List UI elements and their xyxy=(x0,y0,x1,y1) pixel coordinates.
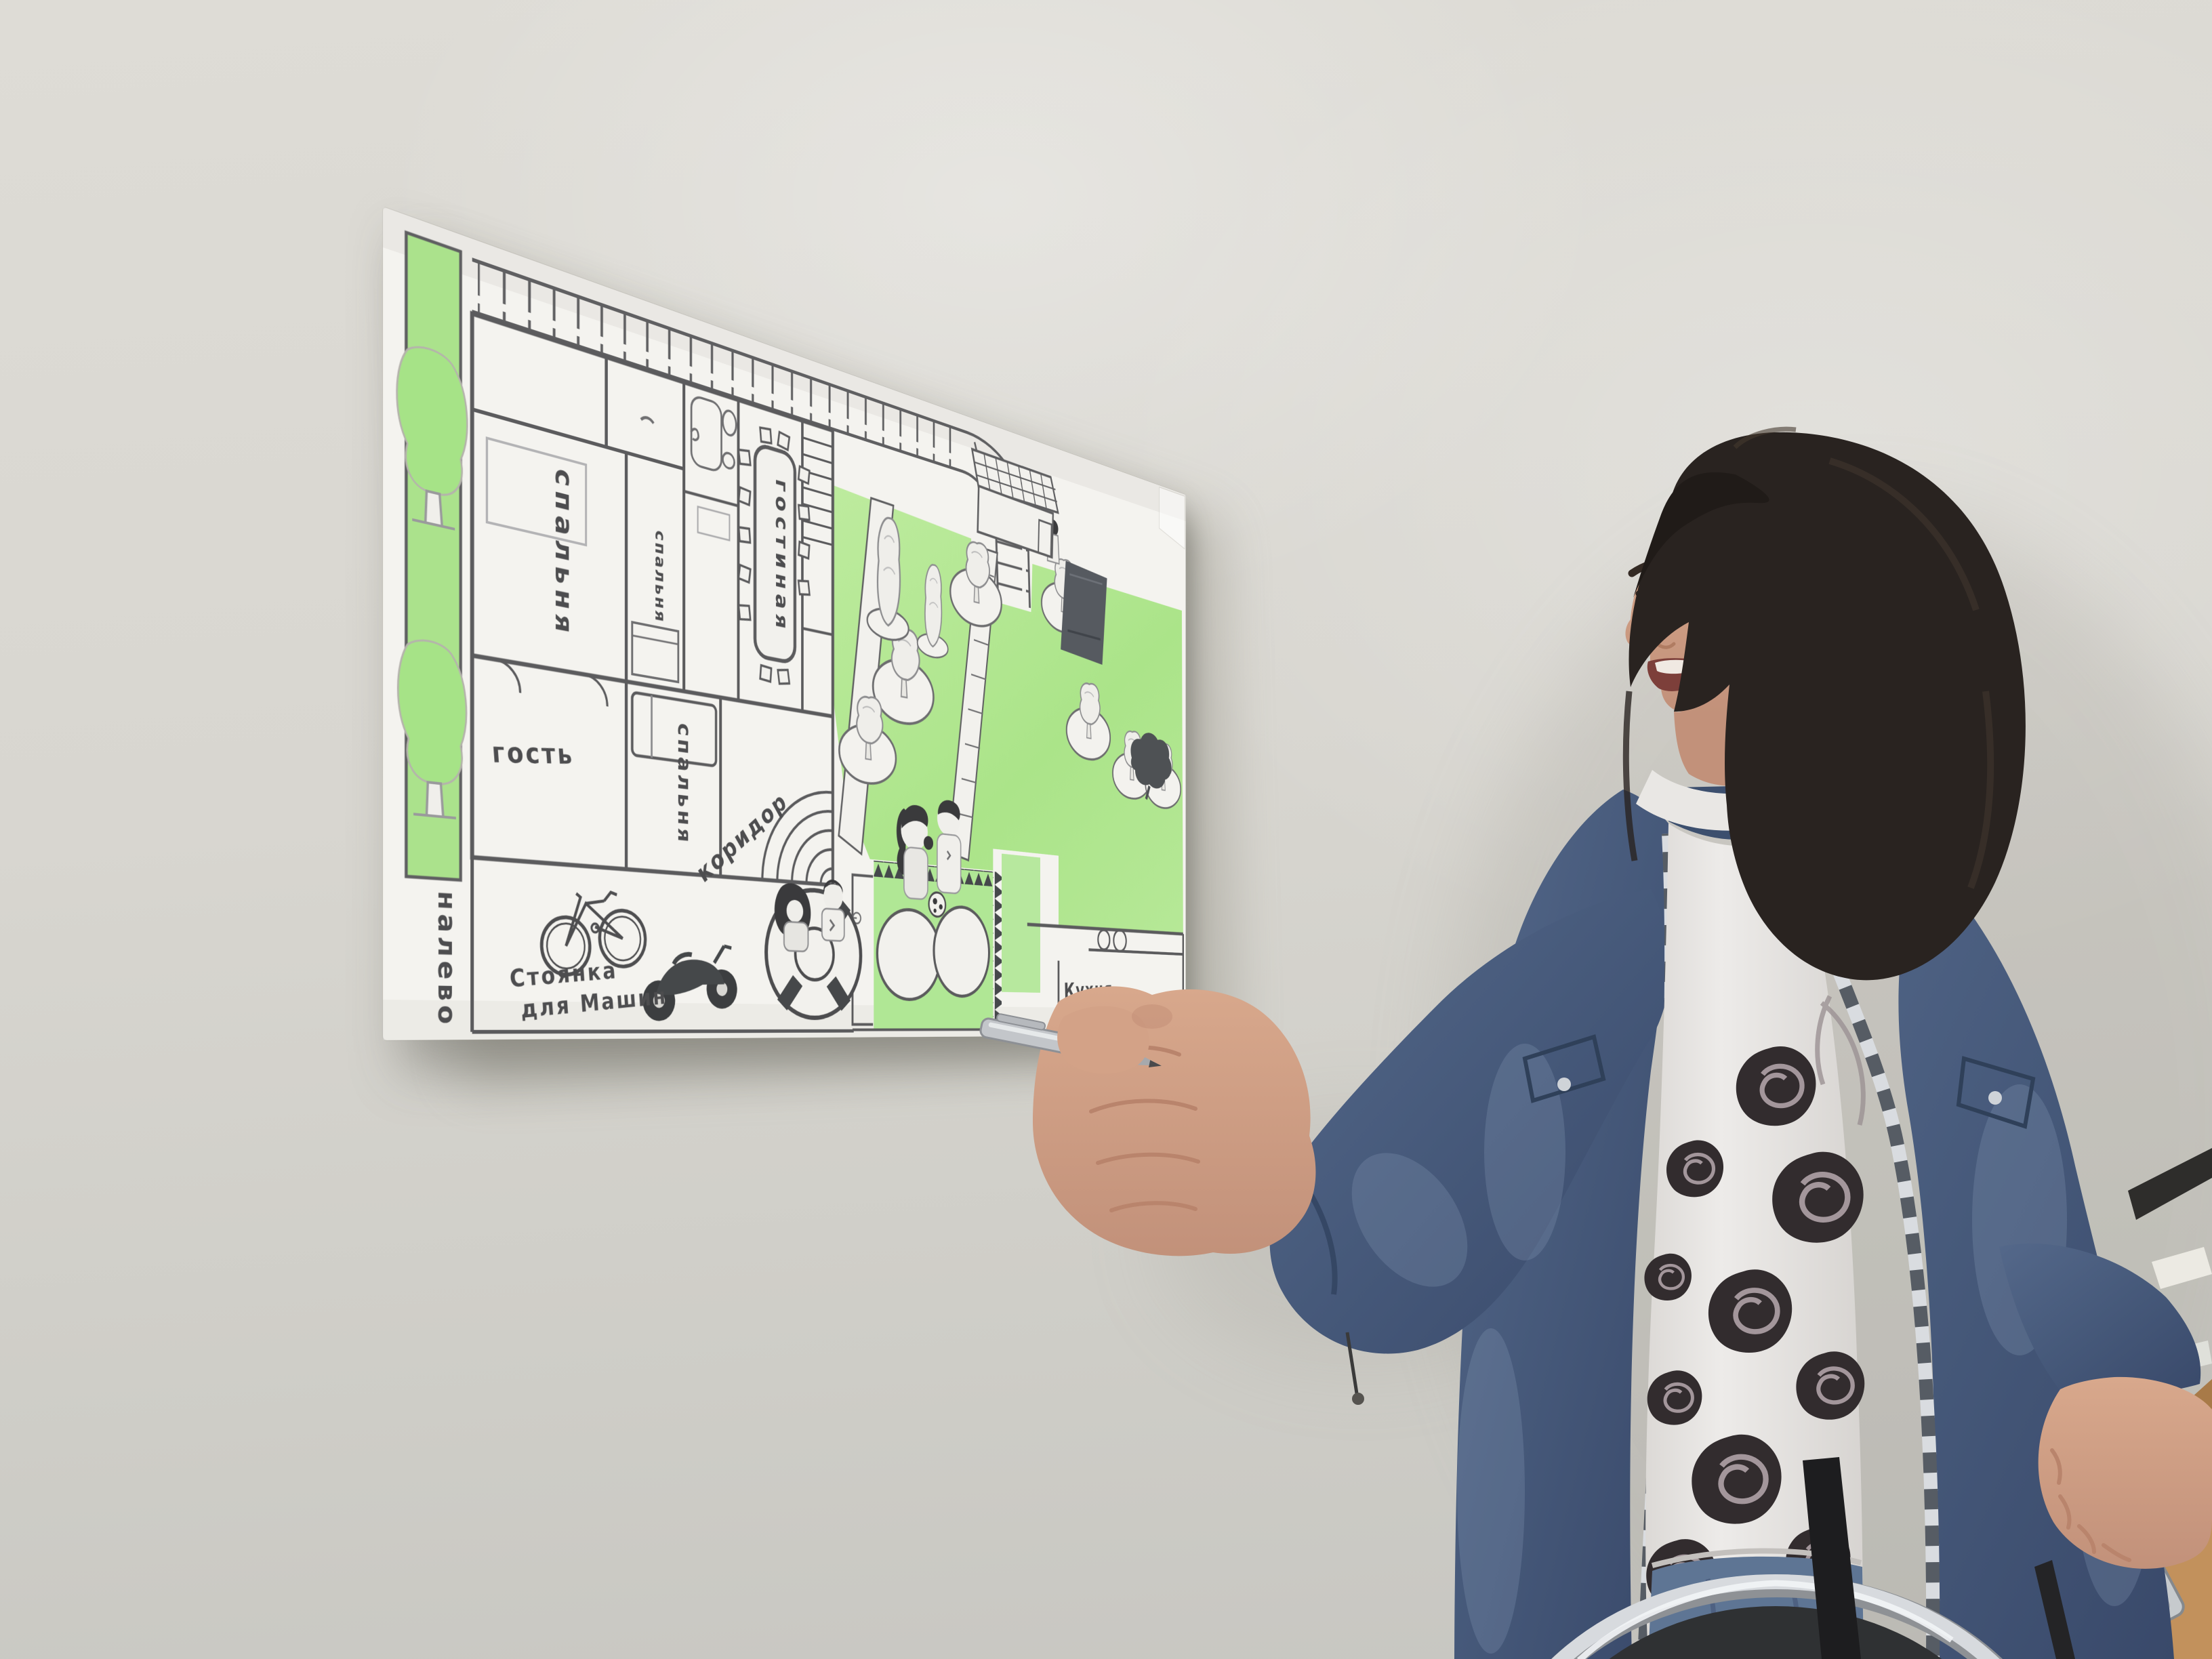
classroom-photo: налево xyxy=(0,0,2212,1659)
metal-frame-bar xyxy=(2128,1148,2212,1220)
pointing-hand xyxy=(979,986,1315,1256)
presenter-layer xyxy=(0,0,2212,1659)
paper-slip xyxy=(2152,1247,2212,1289)
